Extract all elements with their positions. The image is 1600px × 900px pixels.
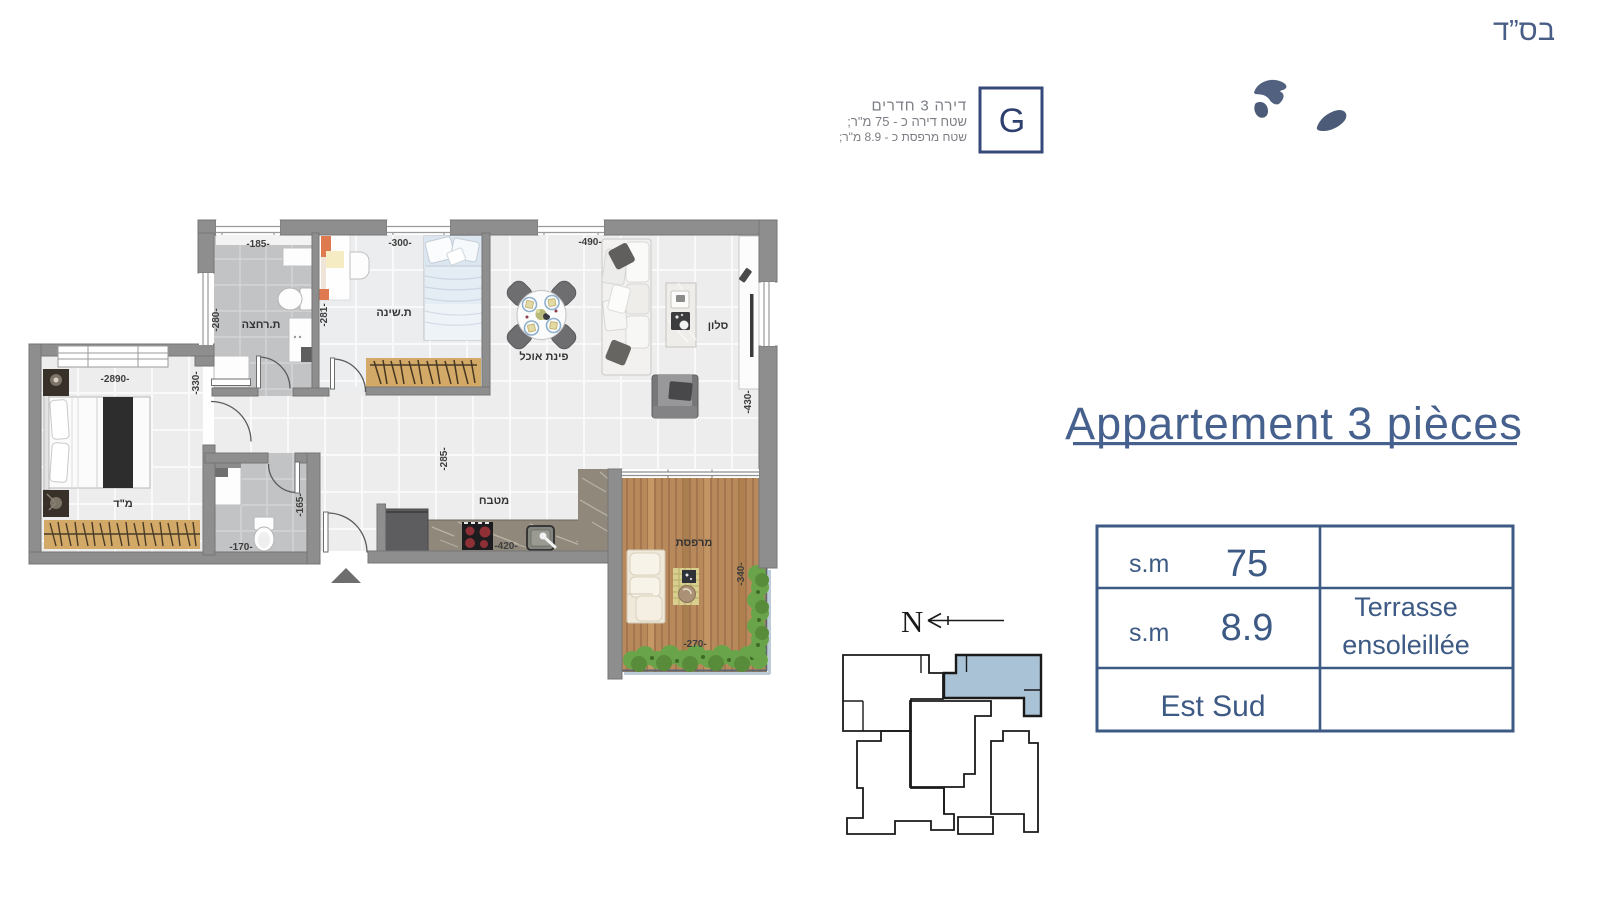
svg-text:-490-: -490- [578,237,601,248]
svg-text:ת.שינה: ת.שינה [376,307,411,319]
svg-text:ensoleillée: ensoleillée [1342,630,1470,660]
svg-text:Appartement 3 pièces: Appartement 3 pièces [1065,398,1523,449]
svg-text:בס”ד: בס”ד [1493,15,1555,47]
svg-text:-340-: -340- [736,562,747,585]
svg-text:-2890-: -2890- [101,374,130,385]
svg-text:Terrasse: Terrasse [1354,592,1458,622]
svg-text:שטח מרפסת כ - 8.9 מ"ר;: שטח מרפסת כ - 8.9 מ"ר; [839,130,967,144]
svg-text:סלון: סלון [708,319,729,332]
svg-text:-281-: -281- [319,303,330,326]
svg-text:s.m: s.m [1129,550,1169,578]
svg-text:מ"ד: מ"ד [113,498,133,510]
svg-text:-285-: -285- [439,447,450,470]
svg-text:-165-: -165- [295,493,306,516]
svg-text:-300-: -300- [388,238,411,249]
svg-text:G: G [999,102,1025,140]
svg-text:דירה 3 חדרים: דירה 3 חדרים [871,98,967,115]
svg-text:-280-: -280- [211,308,222,331]
svg-text:75: 75 [1226,543,1268,585]
svg-text:N: N [901,604,923,639]
svg-text:-330-: -330- [191,371,202,394]
svg-text:8.9: 8.9 [1221,607,1274,649]
svg-text:-420-: -420- [494,541,517,552]
svg-text:-170-: -170- [229,542,252,553]
svg-text:-270-: -270- [683,639,706,650]
svg-text:ת.רחצה: ת.רחצה [242,319,281,331]
svg-text:מרפסת: מרפסת [676,537,713,549]
svg-text:מטבח: מטבח [479,495,509,507]
svg-text:פינת אוכל: פינת אוכל [519,350,568,363]
svg-text:-430-: -430- [743,390,754,413]
svg-text:שטח דירה כ - 75 מ"ר;: שטח דירה כ - 75 מ"ר; [847,114,967,129]
svg-text:s.m: s.m [1129,619,1169,647]
svg-text:-185-: -185- [246,239,269,250]
svg-text:Est Sud: Est Sud [1160,690,1265,723]
